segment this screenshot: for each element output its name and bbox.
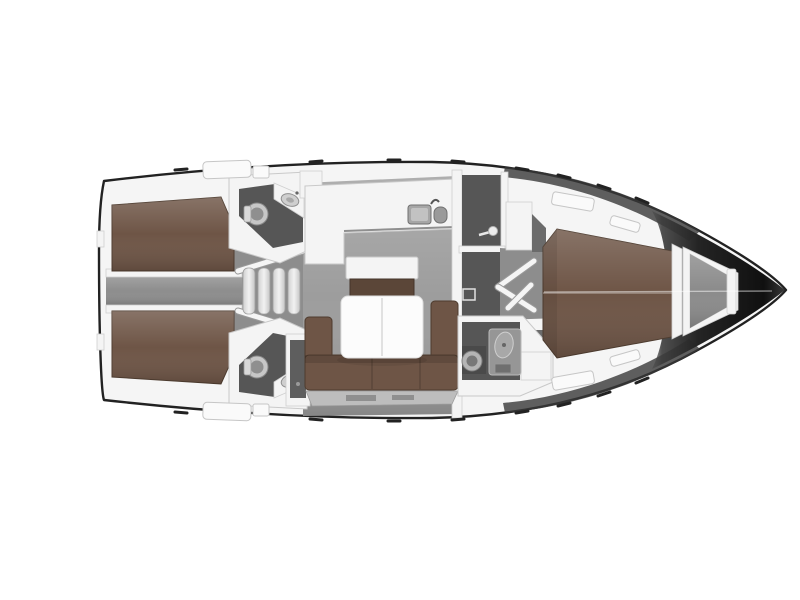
locker-handle [392, 395, 414, 400]
yacht-floorplan [0, 0, 800, 600]
cockpit-locker [253, 404, 269, 416]
toilet-icon [244, 356, 268, 378]
cockpit-locker [203, 160, 252, 179]
head-step [521, 352, 551, 380]
berth-shade [112, 311, 234, 384]
yacht-floorplan-page [0, 0, 800, 600]
deck-tick [175, 169, 187, 170]
locker-strip [306, 391, 458, 406]
passage-shade [106, 277, 242, 305]
step [258, 268, 270, 314]
side-locker-strip [306, 391, 458, 406]
deck-tick [310, 419, 322, 420]
sideboard-top [346, 257, 418, 279]
deck-tick [175, 412, 187, 413]
deck-tick [516, 411, 528, 413]
locker-door [290, 340, 306, 398]
salon-table [337, 296, 427, 366]
berth-shade [112, 197, 234, 271]
cockpit-locker [253, 166, 269, 178]
galley-sink-icon [408, 205, 447, 224]
shower-column [489, 329, 521, 375]
shower-room [459, 172, 508, 253]
transom-step-bottom [97, 334, 104, 350]
transom-step-top [97, 231, 104, 247]
step [273, 268, 285, 314]
shower-wall-aft [459, 246, 505, 253]
deck-tick [516, 168, 528, 170]
toilet-icon [244, 203, 268, 225]
hanging-locker [506, 202, 532, 250]
shower-floor [462, 175, 502, 248]
cockpit-locker [203, 402, 252, 421]
deck-tick [310, 161, 322, 162]
deck-tick [452, 419, 464, 420]
toilet-icon [462, 346, 486, 374]
locker-knob [296, 382, 300, 386]
step [243, 268, 255, 314]
step [288, 268, 300, 314]
deck-tick [452, 161, 464, 162]
locker-handle [346, 395, 376, 401]
